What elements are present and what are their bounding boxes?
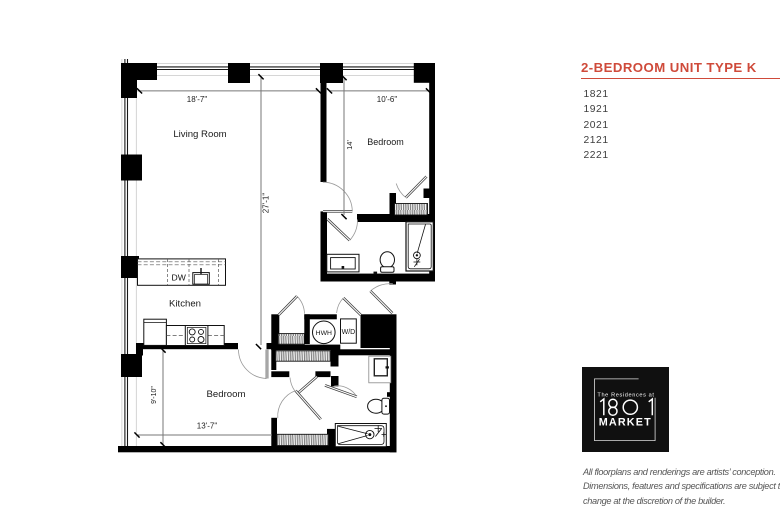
svg-text:13'-7": 13'-7" [197, 421, 218, 430]
svg-text:14': 14' [345, 140, 354, 150]
svg-text:27'-1": 27'-1" [262, 193, 271, 214]
svg-text:Kitchen: Kitchen [169, 299, 201, 310]
svg-text:Bedroom: Bedroom [207, 389, 246, 400]
svg-text:Living Room: Living Room [173, 129, 226, 140]
svg-text:18'-7": 18'-7" [187, 95, 208, 104]
svg-text:10'-6": 10'-6" [377, 95, 398, 104]
svg-text:MARKET: MARKET [599, 417, 652, 429]
svg-text:Bedroom: Bedroom [367, 137, 404, 147]
svg-text:The Residences at: The Residences at [597, 393, 654, 399]
svg-text:DW: DW [172, 273, 187, 283]
svg-text:9'-10": 9'-10" [151, 386, 158, 404]
svg-text:W/D: W/D [342, 329, 356, 336]
svg-text:HWH: HWH [316, 330, 332, 337]
